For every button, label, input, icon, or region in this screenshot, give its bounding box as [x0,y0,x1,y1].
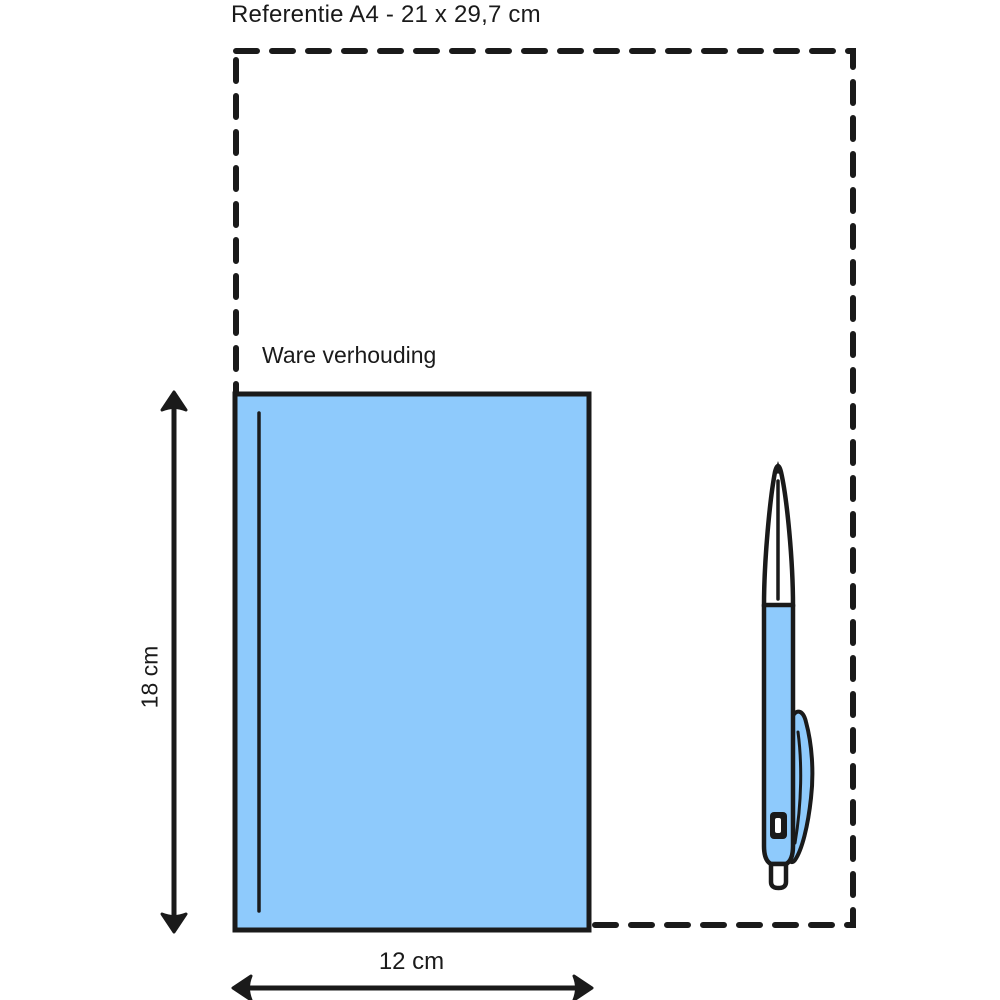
true-proportion-label: Ware verhouding [262,342,436,369]
height-dimension-arrow [162,392,186,932]
width-dimension-label: 12 cm [233,948,590,976]
width-dimension-arrow [233,976,592,1000]
product-fill [235,394,589,930]
pen-push-button [771,864,786,888]
dimension-diagram: Referentie A4 - 21 x 29,7 cm Ware verhou… [0,0,1000,1000]
reference-title: Referentie A4 - 21 x 29,7 cm [231,1,541,29]
arrowhead-up-icon [162,392,186,410]
height-dimension-label: 18 cm [137,646,164,709]
pen-illustration [764,461,812,888]
product-rectangle [235,394,589,930]
pen-slot-inner [775,818,781,833]
arrowhead-right-icon [574,976,592,1000]
arrowhead-left-icon [233,976,251,1000]
diagram-graphics [0,0,1000,1000]
arrowhead-down-icon [162,914,186,932]
